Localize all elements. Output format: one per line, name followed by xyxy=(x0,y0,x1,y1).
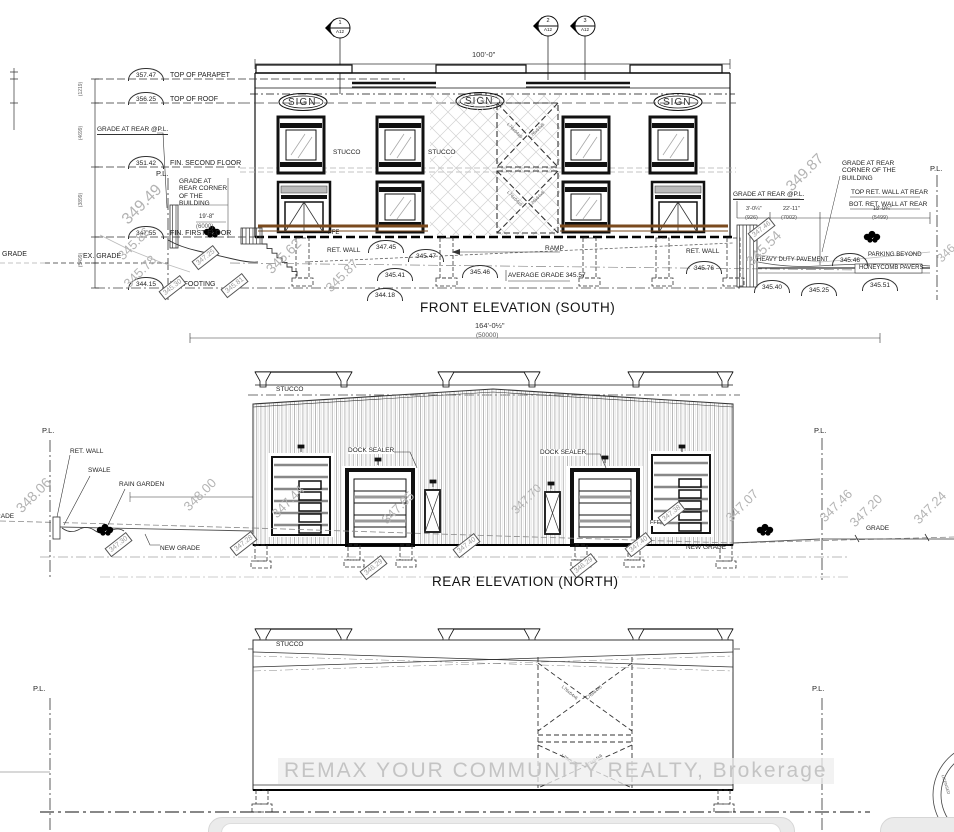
level-label: TOP OF PARAPET xyxy=(170,72,230,80)
bottom-toolbar-fragment[interactable] xyxy=(880,817,954,832)
grade-spot: 346 xyxy=(934,241,954,265)
overall-width-dim: 100'-0" xyxy=(472,51,495,59)
new-grade-label: NEW GRADE xyxy=(160,545,200,552)
front-elevation-linework xyxy=(0,16,937,343)
marker-number: 2 xyxy=(538,18,558,24)
property-line-label: P.L. xyxy=(814,427,826,435)
brace-size-label: L76x64x6 xyxy=(528,190,545,207)
front-elevation-title: FRONT ELEVATION (SOUTH) xyxy=(420,301,615,316)
top-ret-wall-label: TOP RET. WALL AT REAR xyxy=(851,189,928,196)
rear-elevation-linework xyxy=(0,372,954,580)
grade-label: GRADE xyxy=(2,251,27,259)
overall-dim-ft: 164'-0½" xyxy=(475,322,505,330)
ret-wall-label: RET. WALL xyxy=(70,448,103,455)
rear-elevation-labels: STUCCO DOCK SEALER DOCK SEALER P.L. P.L.… xyxy=(0,0,954,832)
grade-spot: 347.24 xyxy=(911,488,950,527)
property-line-label: P.L. xyxy=(42,427,54,435)
level-elevation: 356.25 xyxy=(128,92,164,105)
marker-sheet: A12 xyxy=(330,29,350,34)
architectural-elevation-sheet: 1 A12 2 A12 3 A12 100'-0" SIGN SIGN SIGN… xyxy=(0,0,954,832)
grade-spot: 345.87 xyxy=(323,256,362,295)
ret-wall-label: RET. WALL xyxy=(327,247,360,254)
spot-elevation-arc: 345.25 xyxy=(801,283,837,296)
marker-number: 3 xyxy=(575,18,595,24)
stucco-label: STUCCO xyxy=(333,149,360,156)
grade-spot: 347.20 xyxy=(847,491,886,530)
grade-spot: 348.00 xyxy=(181,475,220,514)
vertical-dim: (4699) xyxy=(78,126,84,140)
stucco-label: STUCCO xyxy=(274,386,305,393)
grade-spot: 345.86 xyxy=(115,224,154,263)
sign-text: SIGN xyxy=(663,97,691,108)
brace-size-label: L76x64x6 xyxy=(506,122,523,139)
spot-elevation-arc: 345.47 xyxy=(408,249,444,262)
dock-sealer-label: DOCK SEALER xyxy=(348,447,394,454)
grade-spot: 345.78 xyxy=(121,252,160,291)
rear-elevation-title: REAR ELEVATION (NORTH) xyxy=(432,575,619,590)
grade-tag: 346.29 xyxy=(570,553,598,579)
grade-rear-corner-label: GRADE AT REAR CORNER OF THE BUILDING xyxy=(842,160,922,182)
grade-tag: 347.46 xyxy=(748,217,776,243)
grade-at-rear-pl-label: GRADE AT REAR @P.L. xyxy=(733,191,804,200)
dim-ft: 19'-8" xyxy=(199,214,214,221)
listing-watermark: REMAX YOUR COMMUNITY REALTY, Brokerage xyxy=(278,758,834,784)
dim-mm: (7002) xyxy=(781,215,797,221)
property-line-label: P.L. xyxy=(156,170,168,178)
grade-spot: 349.49 xyxy=(119,181,166,228)
grade-tag: 347.30 xyxy=(105,532,133,558)
spot-elevation-arc: 345.40 xyxy=(754,280,790,293)
sign-text: SIGN xyxy=(465,96,493,107)
grade-label: GRADE xyxy=(866,525,889,532)
vertical-dim: (3899) xyxy=(78,193,84,207)
grade-spot: 345.62 xyxy=(263,235,305,277)
spot-elevation-arc: 345.41 xyxy=(377,268,413,281)
grade-tag: 347.40 xyxy=(625,532,653,558)
grade-tag: 345.81 xyxy=(221,273,249,299)
ex-grade-label: EX. GRADE xyxy=(83,253,121,261)
vertical-dim: (5499) xyxy=(78,253,84,267)
brace-size-label: L76x64x6 xyxy=(585,684,603,700)
third-elevation-linework xyxy=(0,629,870,832)
dim-ft: 3'-0¼" xyxy=(746,206,762,212)
dim-mm: (926) xyxy=(745,215,758,221)
stucco-label: STUCCO xyxy=(428,149,455,156)
grade-tag: 346.29 xyxy=(360,555,388,581)
grade-spot: 349.87 xyxy=(783,150,827,194)
stucco-label: STUCCO xyxy=(274,641,305,648)
dim-mm: (6000) xyxy=(196,224,213,231)
spot-elevation-arc: 345.51 xyxy=(862,278,898,291)
average-grade-label: AVERAGE GRADE 345.57 xyxy=(508,272,586,279)
dock-sealer-label: DOCK SEALER xyxy=(540,449,586,456)
dim-ft: 22'-11" xyxy=(783,206,800,212)
property-line-label: P.L. xyxy=(930,165,942,173)
level-elevation: 344.15 xyxy=(128,277,164,290)
property-line-label: P.L. xyxy=(812,685,824,693)
spot-elevation-arc: 344.18 xyxy=(367,288,403,301)
rain-garden-label: RAIN GARDEN xyxy=(119,481,164,488)
engineer-stamp-text: LICENSED xyxy=(941,774,952,795)
level-label: TOP OF ROOF xyxy=(170,96,218,104)
honeycomb-pavers-label: HONEYCOMB PAVERS xyxy=(859,265,923,272)
level-elevation: 357.47 xyxy=(128,68,164,81)
dim-mm: (5499) xyxy=(872,215,888,221)
grade-rear-corner-label: GRADE AT REAR CORNER OF THE BUILDING xyxy=(179,178,231,208)
level-label: FIN. SECOND FLOOR xyxy=(170,160,241,168)
brace-size-label: L76x64x6 xyxy=(561,684,579,700)
grade-spot: 347.46 xyxy=(817,486,856,525)
grade-spot: 347.70 xyxy=(508,481,544,517)
grade-label: GRADE xyxy=(0,513,14,520)
level-label: U/S FOOTING xyxy=(170,281,216,289)
ramp-label: RAMP xyxy=(545,245,564,252)
bottom-search-field[interactable] xyxy=(221,823,781,832)
grade-tag: 347.38 xyxy=(658,501,686,527)
elevation-linework xyxy=(0,0,954,832)
marker-sheet: A12 xyxy=(575,27,595,32)
grade-spot: 347.07 xyxy=(723,486,762,525)
grade-spot: 347.44 xyxy=(269,482,308,521)
front-elevation-labels: 1 A12 2 A12 3 A12 100'-0" SIGN SIGN SIGN… xyxy=(0,0,954,832)
swale-label: SWALE xyxy=(88,467,111,474)
level-elevation: 347.55 xyxy=(128,226,164,239)
level-label: FIN. FIRST FLOOR xyxy=(170,230,231,238)
spot-elevation-arc: 347.45 xyxy=(368,240,404,253)
ffe-label: FFE xyxy=(328,230,339,237)
grade-tag: 347.40 xyxy=(453,533,481,559)
spot-elevation-arc: 345.46 xyxy=(832,253,868,266)
grade-spot: 345.54 xyxy=(743,227,785,269)
vertical-dim: (1219) xyxy=(78,82,84,96)
brace-size-label: L76x64x6 xyxy=(528,122,545,139)
brace-size-label: L76x64x6 xyxy=(506,190,523,207)
grade-spot: 347.65 xyxy=(379,488,418,527)
ffe-label: FFE xyxy=(650,520,660,526)
marker-number: 1 xyxy=(330,20,350,26)
dim-ft: 18'-0¾" xyxy=(873,206,892,212)
new-grade-label: NEW GRADE xyxy=(686,544,726,551)
spot-elevation-arc: 345.46 xyxy=(462,265,498,278)
grade-tag: 347.25 xyxy=(192,245,220,271)
sign-text: SIGN xyxy=(288,97,316,108)
parking-beyond-label: PARKING BEYOND xyxy=(868,252,922,259)
grade-tag: 347.28 xyxy=(230,531,258,557)
level-elevation: 351.42 xyxy=(128,156,164,169)
grade-tag: 345.30 xyxy=(159,275,187,301)
marker-sheet: A12 xyxy=(538,27,558,32)
property-line-label: P.L. xyxy=(33,685,45,693)
grade-at-rear-pl-label: GRADE AT REAR @P.L. xyxy=(97,126,168,135)
heavy-duty-pavement-label: HEAVY DUTY PAVEMENT xyxy=(757,257,828,264)
spot-elevation-arc: 345.76 xyxy=(686,261,722,274)
ret-wall-label: RET. WALL xyxy=(686,248,719,255)
grade-spot: 348.06 xyxy=(13,474,55,516)
overall-dim-mm: (50000) xyxy=(476,332,498,339)
third-elevation-labels: STUCCO P.L. P.L. L76x64x6 L76x64x6 L76x6… xyxy=(0,0,954,832)
bot-ret-wall-label: BOT. RET. WALL AT REAR xyxy=(849,201,927,208)
